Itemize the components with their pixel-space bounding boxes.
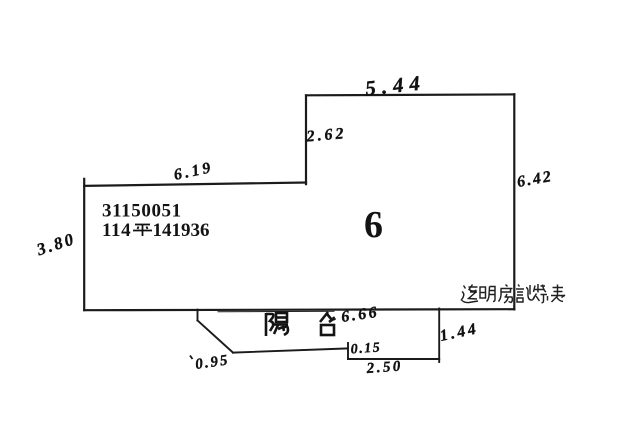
svg-text:141936: 141936 — [153, 220, 210, 241]
svg-text:114: 114 — [102, 220, 131, 241]
svg-text:6: 6 — [364, 204, 383, 246]
svg-text:2.50: 2.50 — [365, 359, 403, 378]
svg-text:31150051: 31150051 — [102, 201, 182, 222]
svg-text:2.62: 2.62 — [305, 125, 347, 146]
svg-text:0.15: 0.15 — [350, 340, 381, 357]
